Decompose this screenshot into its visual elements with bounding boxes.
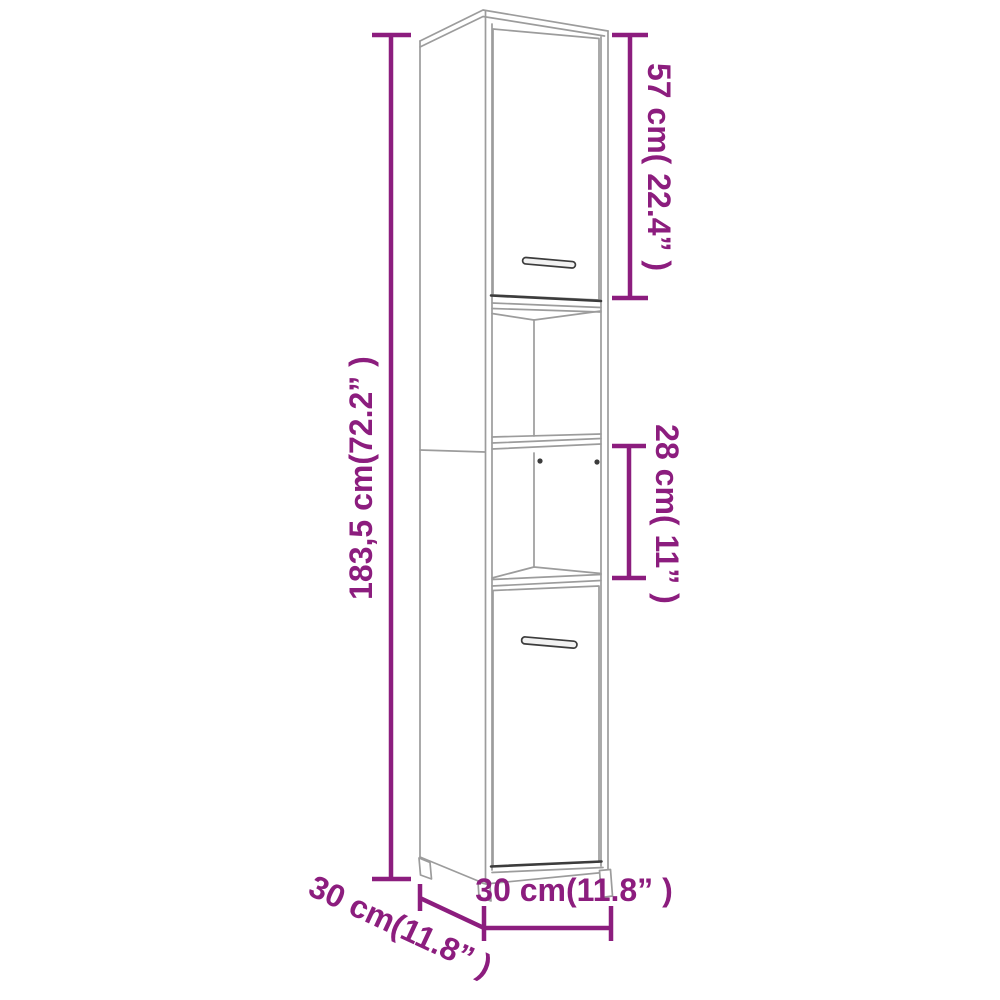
- cabinet-drawing: [419, 10, 613, 901]
- side-panel-seam: [420, 450, 485, 452]
- shelf-2-front-top-edge: [492, 439, 601, 444]
- shelf-3-front-top-edge: [492, 575, 601, 580]
- shelf-dimension-label: 28 cm( 11” ): [649, 424, 685, 604]
- cabinet-dark-lines: [491, 257, 602, 866]
- compartment-1-floor-edge: [492, 434, 601, 437]
- top-door-bottom-edge: [491, 296, 601, 302]
- width-dimension-label: 30 cm(11.8” ): [475, 872, 672, 908]
- cabinet-top-inner-edge: [420, 17, 605, 48]
- top-door-handle: [522, 257, 575, 268]
- compartment-2-floor-back-edge: [534, 567, 601, 574]
- shelf-1-front-top-edge: [492, 303, 601, 308]
- product-dimension-image: 183,5 cm(72.2” ) 57 cm( 22.4” ) 28 cm( 1…: [0, 0, 1000, 1000]
- compartment-1-ceiling-back-edge: [534, 311, 601, 320]
- depth-dimension-label: 30 cm(11.8” ): [304, 868, 498, 984]
- height-dimension-label: 183,5 cm(72.2” ): [343, 356, 379, 600]
- shelf-3-front-bottom-edge: [492, 581, 601, 587]
- shelf-screw-hole-right: [594, 459, 599, 464]
- dimension-lines: [372, 35, 648, 941]
- shelf-screw-hole-left: [537, 458, 542, 463]
- compartment-1-ceiling-left-edge: [492, 314, 534, 321]
- compartment-2-floor-left-edge: [492, 567, 534, 578]
- bottom-door: [493, 586, 599, 867]
- bottom-door-handle: [521, 637, 577, 649]
- shelf-1-front-bottom-edge: [492, 309, 601, 313]
- bottom-door-bottom-edge: [491, 862, 602, 867]
- shelf-2-front-bottom-edge: [492, 444, 601, 449]
- cabinet-dimension-diagram: 183,5 cm(72.2” ) 57 cm( 22.4” ) 28 cm( 1…: [0, 0, 1000, 1000]
- top-door-dimension-label: 57 cm( 22.4” ): [641, 63, 677, 271]
